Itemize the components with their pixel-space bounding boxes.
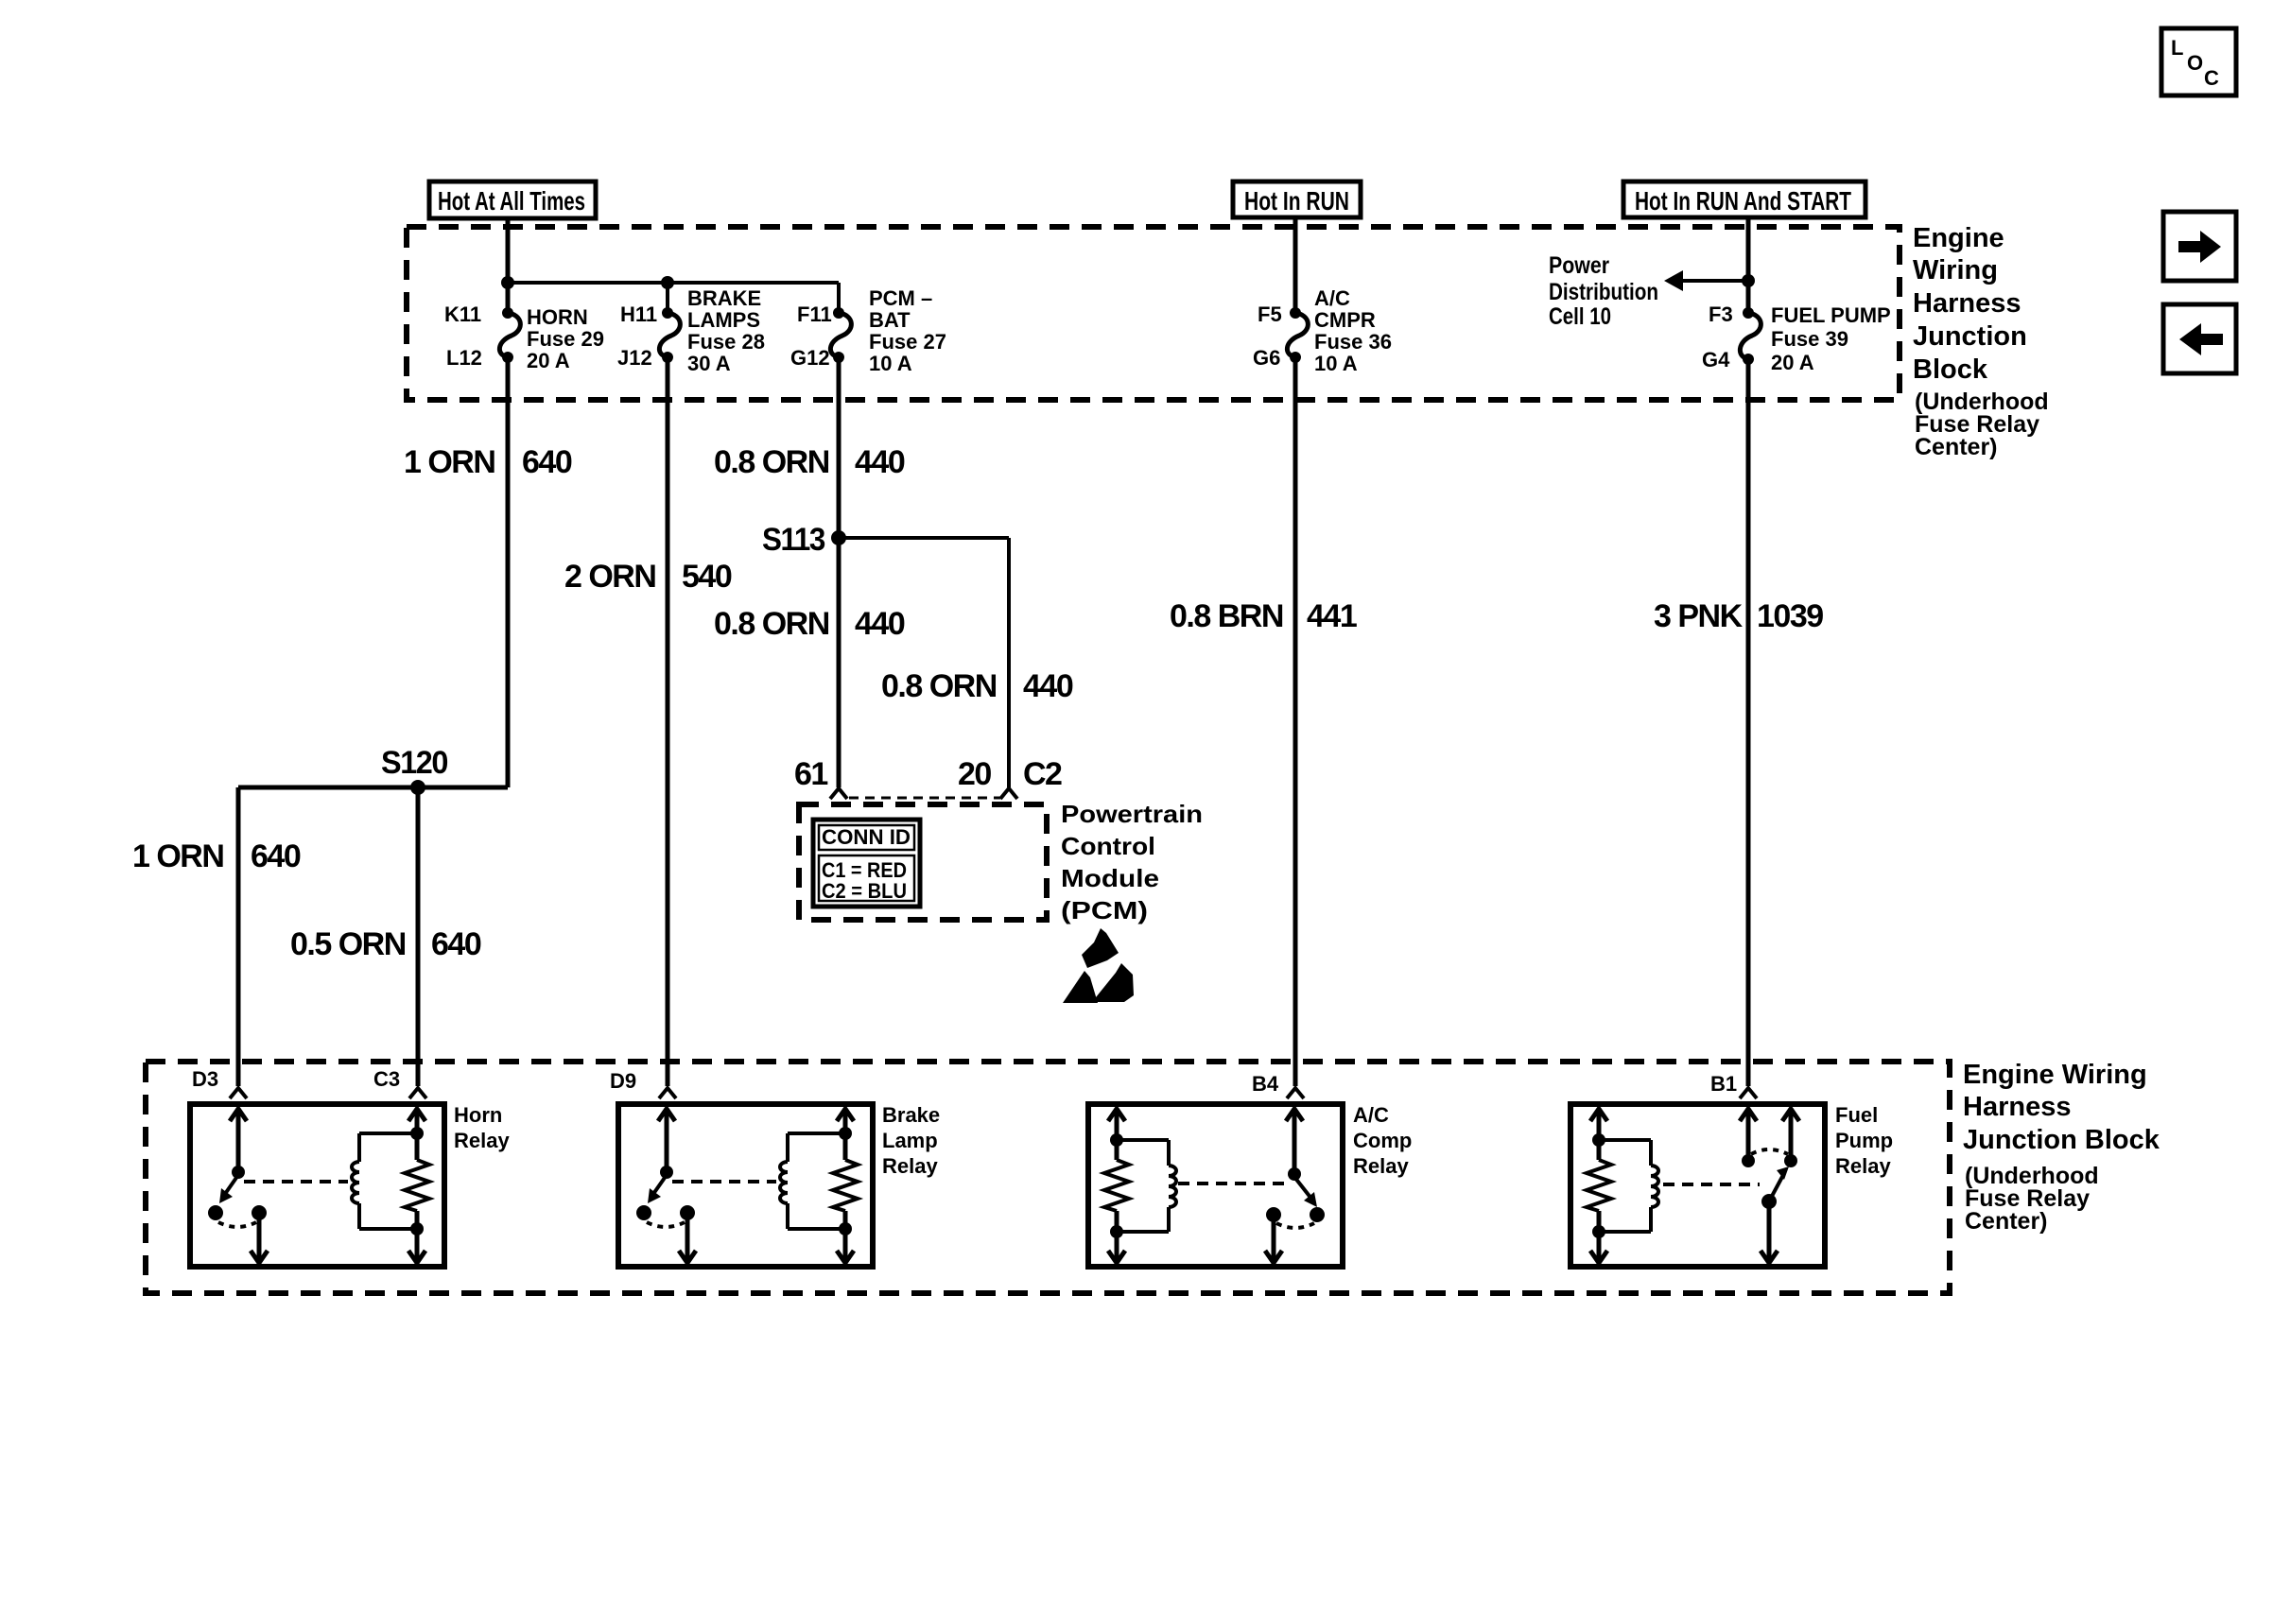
svg-text:Module: Module xyxy=(1061,864,1159,892)
svg-text:Fuse 29: Fuse 29 xyxy=(527,327,604,351)
svg-text:G4: G4 xyxy=(1702,348,1730,371)
svg-text:Brake: Brake xyxy=(882,1103,940,1127)
svg-text:1 ORN: 1 ORN xyxy=(132,838,223,874)
svg-text:1 ORN: 1 ORN xyxy=(404,444,495,480)
svg-text:Lamp: Lamp xyxy=(882,1129,938,1152)
svg-text:440: 440 xyxy=(855,606,905,642)
svg-text:Block: Block xyxy=(1913,354,1988,385)
svg-text:BAT: BAT xyxy=(869,308,911,332)
svg-text:B1: B1 xyxy=(1710,1072,1737,1096)
svg-text:20 A: 20 A xyxy=(1771,351,1814,374)
svg-text:C: C xyxy=(2204,66,2219,90)
svg-text:0.5 ORN: 0.5 ORN xyxy=(290,926,406,962)
svg-text:J12: J12 xyxy=(617,346,652,370)
svg-text:(PCM): (PCM) xyxy=(1061,896,1148,924)
svg-text:F5: F5 xyxy=(1258,302,1282,326)
svg-text:HORN: HORN xyxy=(527,305,588,329)
svg-text:Powertrain: Powertrain xyxy=(1061,800,1203,828)
svg-text:FUEL PUMP: FUEL PUMP xyxy=(1771,303,1891,327)
svg-text:C2: C2 xyxy=(1023,756,1062,792)
svg-text:3 PNK: 3 PNK xyxy=(1654,598,1744,634)
svg-text:Fuse 27: Fuse 27 xyxy=(869,330,946,354)
svg-text:Fuse 36: Fuse 36 xyxy=(1314,330,1392,354)
svg-text:F3: F3 xyxy=(1709,302,1733,326)
svg-text:G6: G6 xyxy=(1253,346,1280,370)
svg-text:S120: S120 xyxy=(381,745,448,781)
svg-text:A/C: A/C xyxy=(1353,1103,1389,1127)
svg-text:440: 440 xyxy=(1023,668,1073,704)
svg-text:0.8 ORN: 0.8 ORN xyxy=(714,606,829,642)
svg-text:D9: D9 xyxy=(610,1069,636,1093)
svg-text:O: O xyxy=(2187,51,2203,75)
svg-text:B4: B4 xyxy=(1252,1072,1279,1096)
svg-text:640: 640 xyxy=(522,444,572,480)
svg-text:G12: G12 xyxy=(790,346,830,370)
svg-text:Center): Center) xyxy=(1965,1208,2048,1235)
svg-text:Power: Power xyxy=(1549,252,1609,279)
svg-text:Fuse 28: Fuse 28 xyxy=(687,330,765,354)
svg-text:Hot In RUN: Hot In RUN xyxy=(1244,186,1349,216)
svg-text:61: 61 xyxy=(794,756,827,792)
svg-text:1039: 1039 xyxy=(1757,598,1823,634)
svg-text:L: L xyxy=(2171,36,2183,60)
svg-text:K11: K11 xyxy=(444,302,481,326)
svg-text:Engine: Engine xyxy=(1913,223,2004,253)
svg-text:L12: L12 xyxy=(446,346,482,370)
svg-text:F11: F11 xyxy=(797,302,832,326)
svg-text:0.8 ORN: 0.8 ORN xyxy=(881,668,997,704)
svg-text:0.8 BRN: 0.8 BRN xyxy=(1170,598,1283,634)
svg-text:Fuse 39: Fuse 39 xyxy=(1771,327,1848,351)
svg-text:Relay: Relay xyxy=(454,1129,510,1152)
svg-text:CONN ID: CONN ID xyxy=(822,825,911,849)
svg-text:Center): Center) xyxy=(1915,434,1998,460)
svg-text:Cell 10: Cell 10 xyxy=(1549,303,1611,330)
svg-text:Pump: Pump xyxy=(1835,1129,1893,1152)
svg-text:Distribution: Distribution xyxy=(1549,279,1658,305)
svg-text:BRAKE: BRAKE xyxy=(687,286,761,310)
svg-text:640: 640 xyxy=(251,838,301,874)
svg-text:20: 20 xyxy=(958,756,991,792)
svg-text:Engine Wiring: Engine Wiring xyxy=(1963,1060,2147,1090)
svg-text:Comp: Comp xyxy=(1353,1129,1412,1152)
svg-text:S113: S113 xyxy=(762,522,825,558)
svg-text:Junction Block: Junction Block xyxy=(1963,1125,2160,1155)
svg-text:10 A: 10 A xyxy=(869,352,912,375)
svg-text:H11: H11 xyxy=(620,302,657,326)
svg-text:Relay: Relay xyxy=(1353,1154,1409,1178)
svg-text:540: 540 xyxy=(682,559,732,595)
svg-text:D3: D3 xyxy=(192,1067,218,1091)
svg-text:Control: Control xyxy=(1061,832,1155,860)
svg-text:C3: C3 xyxy=(373,1067,400,1091)
svg-text:LAMPS: LAMPS xyxy=(687,308,760,332)
svg-text:Relay: Relay xyxy=(882,1154,938,1178)
svg-text:0.8 ORN: 0.8 ORN xyxy=(714,444,829,480)
svg-text:Horn: Horn xyxy=(454,1103,502,1127)
svg-text:A/C: A/C xyxy=(1314,286,1350,310)
svg-text:C2 = BLU: C2 = BLU xyxy=(822,879,907,903)
svg-text:Wiring: Wiring xyxy=(1913,255,1998,285)
svg-text:Junction: Junction xyxy=(1913,321,2027,352)
svg-text:20 A: 20 A xyxy=(527,349,570,372)
svg-text:PCM –: PCM – xyxy=(869,286,932,310)
svg-text:Hot At All Times: Hot At All Times xyxy=(438,186,585,216)
svg-text:Hot In RUN And START: Hot In RUN And START xyxy=(1635,186,1851,216)
svg-text:Fuel: Fuel xyxy=(1835,1103,1878,1127)
svg-text:CMPR: CMPR xyxy=(1314,308,1376,332)
svg-text:441: 441 xyxy=(1307,598,1357,634)
svg-text:10 A: 10 A xyxy=(1314,352,1358,375)
svg-text:Relay: Relay xyxy=(1835,1154,1891,1178)
svg-text:640: 640 xyxy=(431,926,481,962)
svg-text:30 A: 30 A xyxy=(687,352,731,375)
svg-text:Harness: Harness xyxy=(1913,288,2021,319)
svg-text:440: 440 xyxy=(855,444,905,480)
svg-text:2 ORN: 2 ORN xyxy=(564,559,655,595)
svg-text:Harness: Harness xyxy=(1963,1092,2071,1122)
